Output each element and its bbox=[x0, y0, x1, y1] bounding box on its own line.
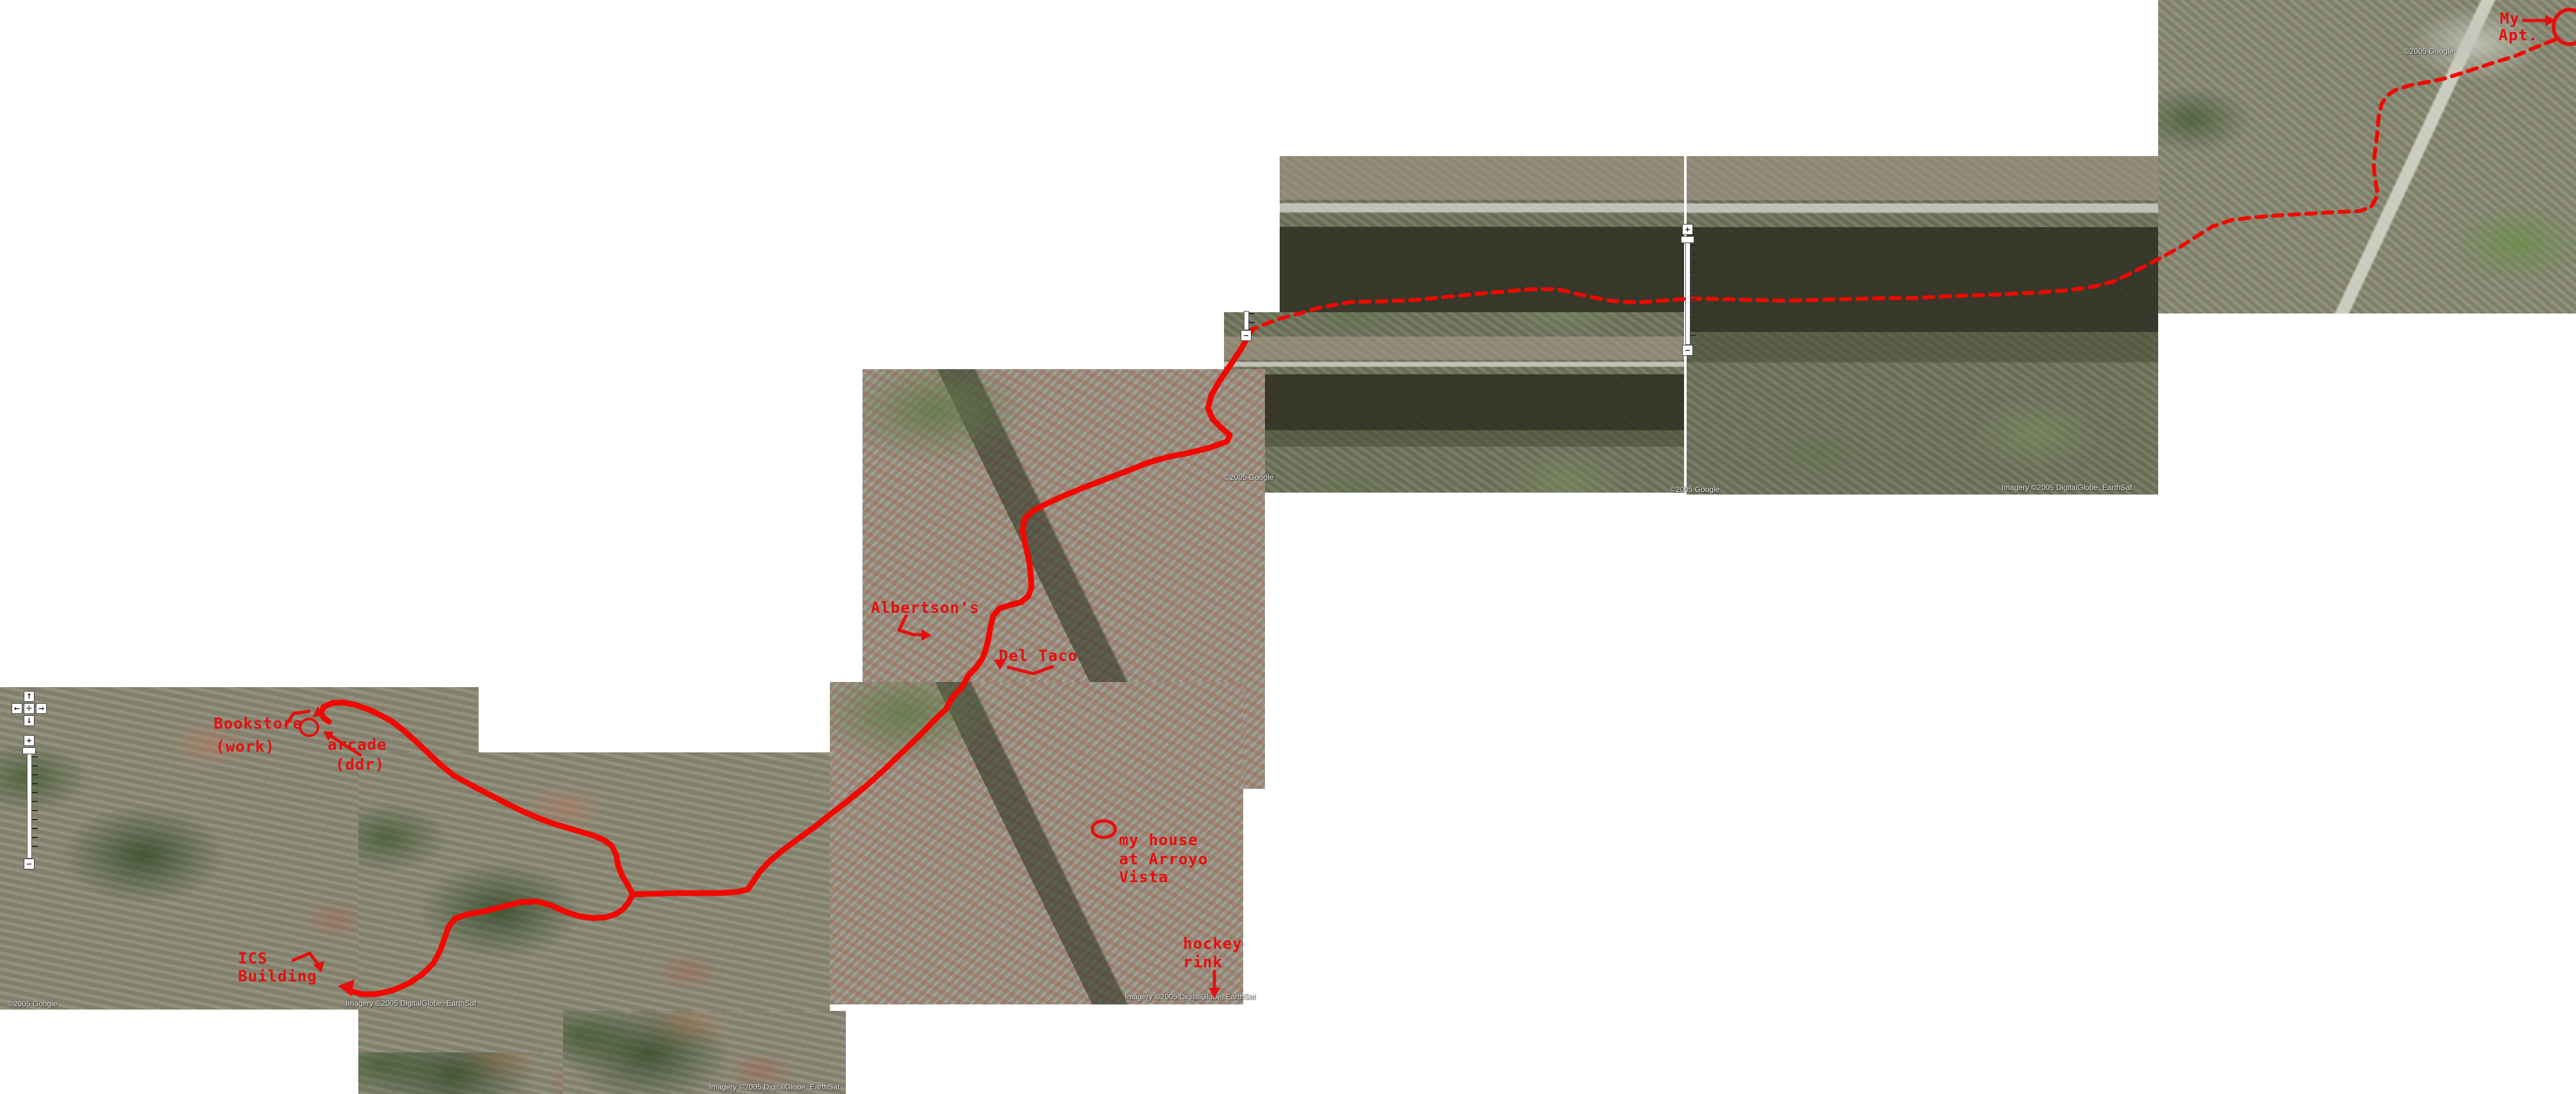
label-ics-line2: Building bbox=[238, 969, 317, 985]
zoom-slider-ticks bbox=[32, 756, 38, 853]
copyright-google: ©2005 Google bbox=[2404, 47, 2454, 56]
label-arcade-line2: (ddr) bbox=[335, 757, 385, 773]
plus-icon: + bbox=[26, 736, 32, 745]
copyright-imagery: Imagery ©2005 DigitalGlobe, EarthSat bbox=[1125, 992, 1255, 1001]
copyright-imagery: Imagery ©2005 DigitalGlobe, EarthSat bbox=[346, 999, 476, 1008]
pan-center-button[interactable]: ✛ bbox=[24, 703, 35, 714]
pan-right-icon: → bbox=[38, 704, 44, 713]
label-my-apt-line1: My bbox=[2500, 11, 2520, 27]
label-ics-line1: ICS bbox=[238, 951, 267, 967]
zoom-in-button[interactable]: + bbox=[1682, 224, 1693, 235]
label-hockey-line2: rink bbox=[1183, 955, 1223, 971]
copyright-google: ©2005 Google bbox=[8, 999, 58, 1008]
zoom-slider-track[interactable] bbox=[27, 749, 32, 859]
label-my-apt-line2: Apt. bbox=[2499, 28, 2538, 44]
pan-down-button[interactable]: ↓ bbox=[24, 715, 35, 726]
zoom-slider-track[interactable] bbox=[1244, 311, 1249, 330]
zoom-slider-handle[interactable] bbox=[22, 747, 36, 754]
label-arcade-line1: arcade bbox=[328, 737, 387, 753]
label-del-taco: Del Taco bbox=[999, 648, 1078, 664]
zoom-in-button[interactable]: + bbox=[24, 735, 35, 746]
map-tile-bottom-right[interactable] bbox=[563, 1011, 846, 1094]
pan-left-icon: ← bbox=[14, 704, 20, 713]
copyright-imagery: Imagery ©2005 DigitalGlobe, EarthSat bbox=[2001, 483, 2132, 492]
copyright-imagery: Imagery ©2005 DigitalGlobe, EarthSat bbox=[709, 1082, 839, 1091]
label-albertsons: Albertson's bbox=[871, 600, 980, 616]
map-collage: ©2005 Google Imagery ©2005 DigitalGlobe,… bbox=[0, 0, 2576, 1094]
zoom-out-button[interactable]: − bbox=[1241, 330, 1252, 341]
zoom-slider-track[interactable] bbox=[1685, 237, 1690, 345]
pan-right-button[interactable]: → bbox=[36, 703, 47, 714]
pan-left-button[interactable]: ← bbox=[12, 703, 22, 714]
label-my-house-line1: my house bbox=[1119, 832, 1198, 848]
plus-icon: + bbox=[1685, 225, 1690, 234]
copyright-google: ©2005 Google bbox=[1224, 473, 1274, 482]
label-bookstore-line1: Bookstore bbox=[214, 716, 303, 732]
map-tile-upper-right[interactable] bbox=[1687, 156, 2158, 495]
label-hockey-line1: hockey bbox=[1183, 936, 1243, 952]
copyright-google: ©2005 Google bbox=[1670, 485, 1720, 494]
zoom-slider-ticks bbox=[1249, 313, 1255, 329]
pan-center-icon: ✛ bbox=[26, 704, 32, 713]
zoom-out-button[interactable]: − bbox=[24, 859, 35, 869]
map-tile-top-right[interactable] bbox=[2158, 0, 2576, 313]
zoom-out-button[interactable]: − bbox=[1682, 345, 1693, 356]
label-bookstore-line2: (work) bbox=[216, 739, 275, 755]
minus-icon: − bbox=[26, 860, 32, 868]
zoom-slider-handle[interactable] bbox=[1681, 236, 1694, 243]
map-tile-upper-left-ext[interactable] bbox=[1224, 312, 1684, 493]
pan-up-icon: ↑ bbox=[26, 692, 32, 701]
minus-icon: − bbox=[1685, 346, 1690, 354]
pan-down-icon: ↓ bbox=[26, 717, 32, 725]
label-my-house-line2: at Arroyo bbox=[1119, 852, 1208, 868]
zoom-slider-ticks bbox=[1690, 245, 1696, 340]
pan-up-button[interactable]: ↑ bbox=[24, 691, 35, 702]
minus-icon: − bbox=[1243, 331, 1249, 340]
label-my-house-line3: Vista bbox=[1119, 869, 1168, 885]
